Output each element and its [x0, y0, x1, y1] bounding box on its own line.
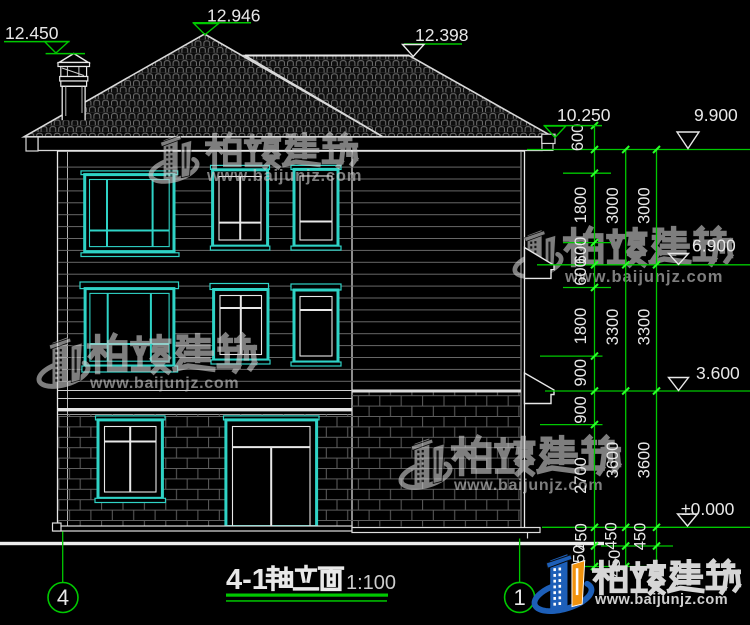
svg-text:1800: 1800	[572, 187, 590, 224]
svg-text:9.900: 9.900	[694, 105, 738, 125]
svg-text:600: 600	[569, 124, 587, 152]
svg-text:450: 450	[603, 522, 621, 550]
svg-text:600: 600	[572, 258, 590, 286]
svg-text:2700: 2700	[572, 457, 590, 494]
svg-text:3300: 3300	[635, 309, 653, 346]
svg-text:1800: 1800	[572, 308, 590, 345]
svg-text:3000: 3000	[604, 187, 622, 224]
svg-text:3600: 3600	[635, 442, 653, 479]
svg-text:www.baijunjz.com: www.baijunjz.com	[594, 592, 728, 608]
svg-text:6.900: 6.900	[692, 236, 736, 256]
svg-text:3300: 3300	[604, 309, 622, 346]
svg-text:12.450: 12.450	[5, 23, 59, 43]
svg-text:3600: 3600	[604, 442, 622, 479]
svg-text:10.250: 10.250	[557, 105, 611, 125]
svg-text:www.baijunjz.com: www.baijunjz.com	[89, 375, 239, 392]
svg-text:±0.000: ±0.000	[681, 499, 735, 519]
svg-text:900: 900	[572, 396, 590, 424]
svg-text:3.600: 3.600	[696, 363, 740, 383]
svg-text:12.398: 12.398	[415, 25, 469, 45]
svg-text:www.baijunjz.com: www.baijunjz.com	[206, 167, 362, 185]
svg-text:1: 1	[513, 585, 525, 610]
svg-text:4-1: 4-1	[226, 564, 268, 596]
svg-text:4: 4	[57, 585, 69, 610]
svg-text:900: 900	[572, 359, 590, 387]
svg-text:450: 450	[632, 523, 650, 551]
svg-text:1:100: 1:100	[346, 572, 396, 594]
svg-text:3000: 3000	[635, 187, 653, 224]
